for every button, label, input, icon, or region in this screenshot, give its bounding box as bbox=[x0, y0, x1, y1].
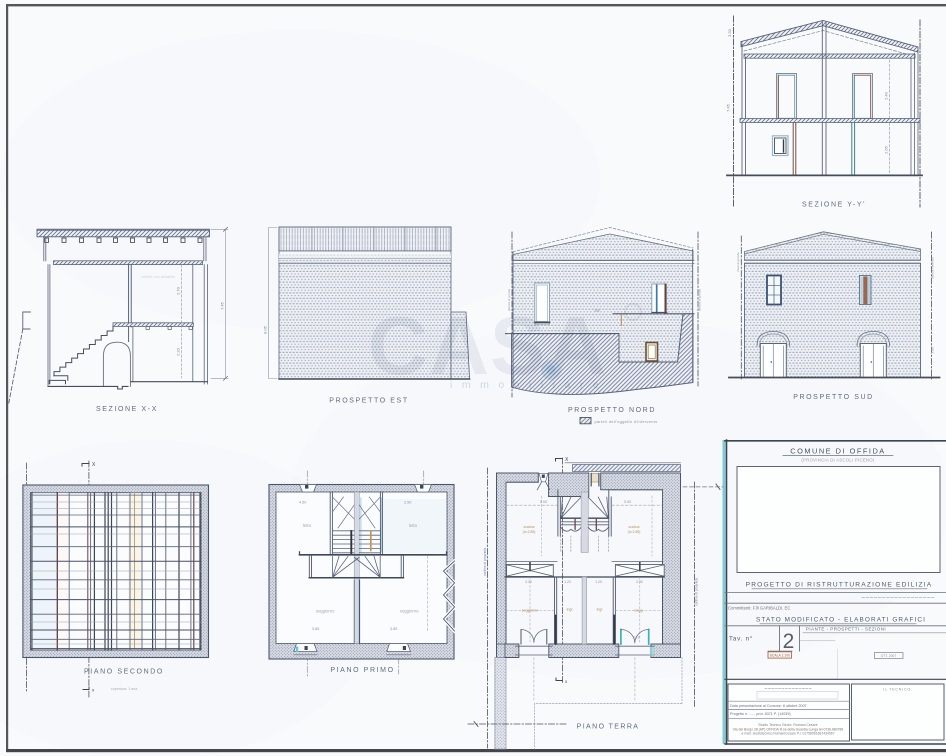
svg-text:2.40: 2.40 bbox=[884, 91, 889, 100]
svg-text:OTT. 2007: OTT. 2007 bbox=[881, 654, 897, 658]
svg-text:Tav. n°: Tav. n° bbox=[729, 636, 753, 643]
svg-text:7.45: 7.45 bbox=[726, 103, 731, 112]
svg-text:PROSPETTO EST: PROSPETTO EST bbox=[329, 398, 408, 405]
svg-text:3.85: 3.85 bbox=[312, 627, 319, 631]
svg-text:immobiliare: immobiliare bbox=[450, 379, 608, 391]
svg-text:confine di proprietà: confine di proprietà bbox=[483, 548, 487, 576]
svg-text:Progetto n. ...... prot. 8371: Progetto n. ...... prot. 8371 P. (14039) bbox=[730, 712, 791, 716]
svg-text:4.50: 4.50 bbox=[299, 501, 306, 505]
svg-text:copertura: 1 ana: copertura: 1 ana bbox=[111, 687, 137, 691]
svg-text:SEZIONE X-X: SEZIONE X-X bbox=[96, 406, 158, 413]
svg-text:2.50: 2.50 bbox=[404, 501, 411, 505]
svg-text:2.30: 2.30 bbox=[636, 580, 643, 584]
svg-text:PROGETTO DI RISTRUTTURAZIONE E: PROGETTO DI RISTRUTTURAZIONE EDILIZIA bbox=[746, 582, 933, 589]
svg-text:ingr.: ingr. bbox=[567, 608, 574, 612]
svg-text:2.30: 2.30 bbox=[525, 580, 532, 584]
svg-text:3.30: 3.30 bbox=[727, 28, 732, 37]
svg-text:2.20: 2.20 bbox=[175, 347, 180, 356]
svg-text::: : bbox=[729, 595, 730, 600]
svg-text:7.45: 7.45 bbox=[220, 301, 225, 310]
svg-text:IL TECNICO: IL TECNICO bbox=[883, 688, 911, 692]
svg-text:PIANO TERRA: PIANO TERRA bbox=[577, 724, 640, 731]
svg-text:cucina: cucina bbox=[629, 525, 641, 529]
svg-text:2.85: 2.85 bbox=[931, 347, 935, 354]
svg-text:soffitta non abitabile: soffitta non abitabile bbox=[141, 275, 175, 279]
svg-text:STATO MODIFICATO - ELABORATI G: STATO MODIFICATO - ELABORATI GRAFICI bbox=[756, 617, 926, 624]
svg-text:(h=2.85): (h=2.85) bbox=[628, 530, 641, 534]
svg-text:3.00: 3.00 bbox=[540, 500, 547, 504]
svg-text:(PROVINCIA DI ASCOLI PICENO): (PROVINCIA DI ASCOLI PICENO) bbox=[801, 458, 874, 463]
svg-text:confine di proprietà: confine di proprietà bbox=[694, 578, 698, 606]
svg-text:PIANTE - PROSPETTI - SEZIONI: PIANTE - PROSPETTI - SEZIONI bbox=[806, 627, 886, 632]
svg-text:SEZIONE Y-Y': SEZIONE Y-Y' bbox=[802, 202, 866, 209]
svg-text:Data presentazione al Comune:: Data presentazione al Comune: 8 ottobre … bbox=[730, 704, 807, 708]
svg-text:2.65: 2.65 bbox=[884, 145, 889, 154]
svg-text:2: 2 bbox=[783, 630, 795, 653]
svg-text:(h=2.85): (h=2.85) bbox=[523, 530, 536, 534]
svg-text:8.05: 8.05 bbox=[263, 325, 268, 334]
svg-text:COMUNE DI OFFIDA: COMUNE DI OFFIDA bbox=[790, 447, 885, 456]
svg-text:PROSPETTO SUD: PROSPETTO SUD bbox=[793, 394, 874, 401]
svg-text:soggiorno: soggiorno bbox=[316, 609, 335, 614]
svg-text:3.00: 3.00 bbox=[624, 500, 631, 504]
svg-text:PIANO SECONDO: PIANO SECONDO bbox=[84, 669, 164, 676]
svg-text:PROSPETTO NORD: PROSPETTO NORD bbox=[568, 407, 656, 414]
svg-text:soggiorno: soggiorno bbox=[400, 609, 419, 614]
svg-text:linea di gronda: linea di gronda bbox=[736, 252, 740, 271]
svg-text:e-mail: studiotecnico.RomaniCe: e-mail: studiotecnico.RomaniCesare P.I. … bbox=[741, 732, 834, 736]
svg-text:soggiorno: soggiorno bbox=[522, 609, 539, 613]
svg-text:parte/i dell'oggetto d'interve: parte/i dell'oggetto d'intervento bbox=[595, 420, 658, 424]
svg-text:SCALA 1:100: SCALA 1:100 bbox=[770, 654, 790, 658]
svg-text:2.70: 2.70 bbox=[175, 286, 180, 295]
svg-text:Committenti: F.lli GARIBALDI,: Committenti: F.lli GARIBALDI, EC bbox=[728, 606, 790, 611]
svg-text:1.20: 1.20 bbox=[564, 580, 571, 584]
svg-text:cucina: cucina bbox=[524, 525, 536, 529]
svg-text:3.85: 3.85 bbox=[390, 627, 397, 631]
svg-text:1.20: 1.20 bbox=[595, 580, 602, 584]
svg-text:sogg.: sogg. bbox=[634, 609, 643, 613]
svg-text:PIANO PRIMO: PIANO PRIMO bbox=[330, 667, 394, 674]
svg-text:letto: letto bbox=[409, 523, 418, 528]
svg-text:altezza di gronda: altezza di gronda bbox=[698, 289, 702, 311]
svg-text:altezza massima: altezza massima bbox=[931, 257, 935, 279]
svg-text:letto: letto bbox=[303, 523, 312, 528]
svg-text:ingr.: ingr. bbox=[597, 608, 604, 612]
